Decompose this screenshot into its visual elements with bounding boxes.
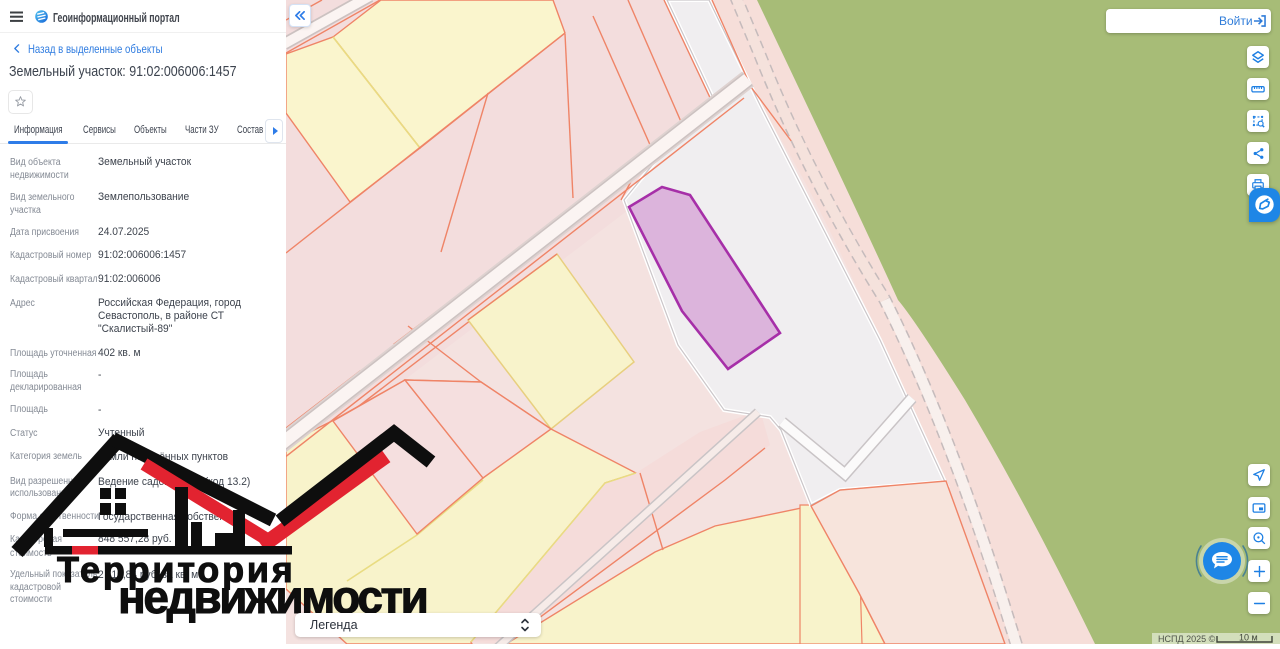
svg-text:10 м: 10 м: [1239, 633, 1258, 643]
